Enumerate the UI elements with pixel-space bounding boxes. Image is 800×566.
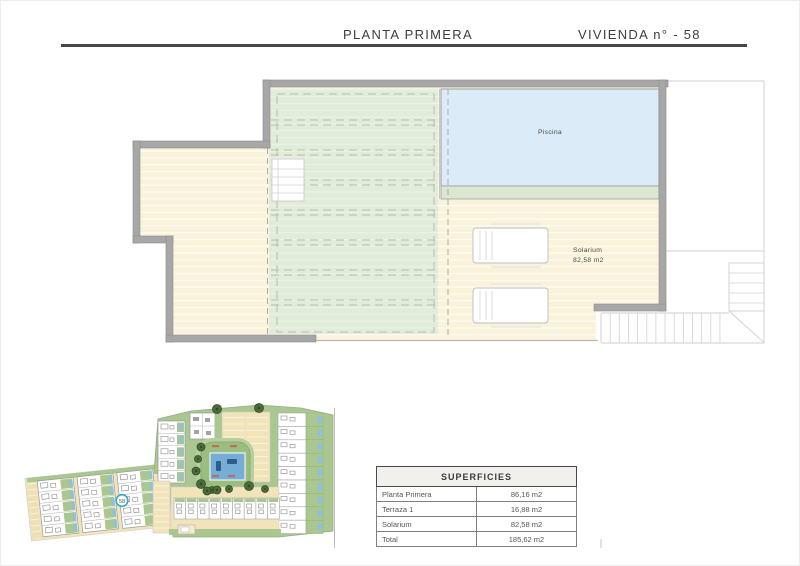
site-utility-stub xyxy=(178,525,195,534)
site-block-b xyxy=(190,412,222,442)
table-row: Total185,62 m2 xyxy=(377,532,577,547)
row-value: 16,88 m2 xyxy=(477,502,577,517)
solarium-label: Solarium xyxy=(573,247,602,254)
superficies-table: SUPERFICIES Planta Primera86,16 m2Terraz… xyxy=(376,466,577,547)
dwelling-marker: 58 xyxy=(116,495,128,507)
table-row: Planta Primera86,16 m2 xyxy=(377,487,577,502)
external-stair-right-flight xyxy=(729,263,764,343)
sun-lounger-2 xyxy=(473,284,548,327)
row-label: Planta Primera xyxy=(377,487,477,502)
row-value: 185,62 m2 xyxy=(477,532,577,547)
plan-sheet: PLANTA PRIMERA VIVIENDA n° - 58 xyxy=(0,0,800,566)
site-right-houses xyxy=(278,413,323,534)
pool-area xyxy=(441,89,659,186)
scan-artifact xyxy=(600,539,602,548)
row-label: Terraza 1 xyxy=(377,502,477,517)
pergola-area xyxy=(269,89,438,334)
superficies-body: Planta Primera86,16 m2Terraza 116,88 m2S… xyxy=(377,487,577,547)
row-label: Solarium xyxy=(377,517,477,532)
site-block-a xyxy=(158,421,185,483)
row-value: 82,58 m2 xyxy=(477,517,577,532)
sun-lounger-1 xyxy=(473,224,548,267)
row-value: 86,16 m2 xyxy=(477,487,577,502)
site-parking-side xyxy=(153,481,170,533)
solarium-area-label: 82,58 m2 xyxy=(573,257,604,264)
dwelling-marker-number: 58 xyxy=(119,499,125,505)
superficies-title: SUPERFICIES xyxy=(377,467,577,487)
strip-house-blocks xyxy=(37,469,158,537)
external-stair-bottom-run xyxy=(601,313,729,343)
row-label: Total xyxy=(377,532,477,547)
site-plan: 58 xyxy=(25,404,333,542)
table-row: Solarium82,58 m2 xyxy=(377,517,577,532)
table-row: Terraza 116,88 m2 xyxy=(377,502,577,517)
pool-label: Piscina xyxy=(538,129,562,136)
pool-edge-strip xyxy=(441,186,659,199)
interior-stair xyxy=(272,159,304,201)
